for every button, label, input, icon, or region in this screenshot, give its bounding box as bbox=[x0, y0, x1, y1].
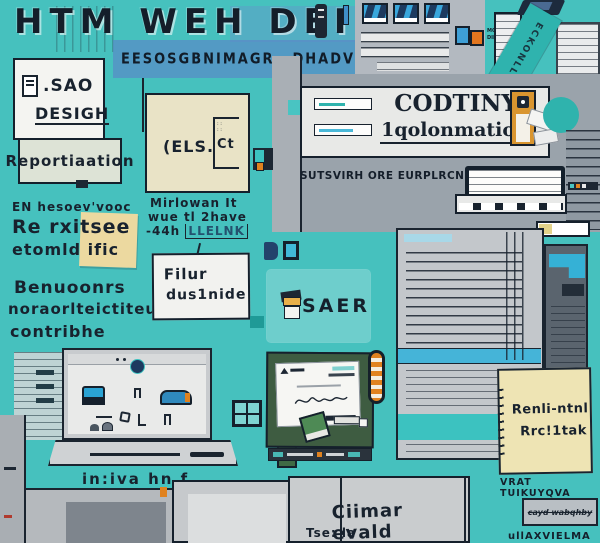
list-row[interactable] bbox=[361, 47, 449, 58]
window-rule-lines bbox=[506, 232, 528, 360]
doc-teal-chip bbox=[332, 366, 354, 371]
doodle-arch bbox=[134, 388, 141, 398]
sidebar-lines bbox=[551, 306, 585, 366]
square-icon bbox=[283, 241, 299, 260]
window-toolbar[interactable] bbox=[455, 194, 567, 214]
document-icon-line bbox=[26, 84, 34, 86]
window-tab-strip[interactable] bbox=[404, 234, 452, 242]
doc-logo bbox=[280, 368, 288, 374]
sticky-line1: Renli-ntnl bbox=[512, 401, 589, 417]
cream-card-label: (ELS. bbox=[163, 137, 214, 156]
hand-note-line: Mirlowan It bbox=[150, 196, 237, 210]
coding-panel-title: CODTINY bbox=[386, 90, 526, 117]
sticky-line2: Rrc!1tak bbox=[520, 423, 587, 439]
taskbar-dot bbox=[582, 184, 586, 188]
hand-note-link[interactable]: LLELNK bbox=[185, 224, 247, 239]
scribble-box: cayd wabqhby bbox=[522, 498, 598, 526]
toolbar-chip bbox=[317, 452, 322, 457]
saer-card[interactable]: SAER bbox=[267, 270, 370, 342]
avatar[interactable] bbox=[130, 359, 145, 374]
printer-icon-body bbox=[284, 306, 300, 319]
app-icon[interactable] bbox=[315, 4, 327, 38]
laptop-screen bbox=[62, 348, 212, 440]
desk-leg bbox=[0, 415, 26, 543]
cream-card: (ELS. : :: : Ct bbox=[145, 93, 250, 193]
sticky-note[interactable]: Renli-ntnl Rrc!1tak bbox=[497, 367, 593, 475]
monitor-icon-screen bbox=[255, 150, 264, 162]
laptop-screen-content bbox=[68, 354, 206, 434]
product-icon-bag[interactable] bbox=[82, 386, 105, 405]
product-icon-car[interactable] bbox=[160, 390, 192, 405]
report-card-tab bbox=[76, 180, 88, 188]
notes-line: Benuoonrs bbox=[14, 278, 126, 298]
menu-row-accent bbox=[319, 129, 353, 132]
blue-bar-icon bbox=[343, 5, 349, 25]
clock-dot bbox=[521, 100, 525, 104]
doc-mini-box bbox=[359, 418, 368, 427]
notes-line: Re rxitsee bbox=[12, 216, 130, 238]
side-taskbar bbox=[566, 130, 600, 230]
notes-line: etomld ific bbox=[12, 240, 119, 259]
laptop-trackpad[interactable] bbox=[190, 452, 224, 457]
report-card[interactable]: Reportiaation bbox=[18, 138, 122, 184]
orange-chip bbox=[256, 162, 264, 171]
toolbar-chip bbox=[326, 453, 344, 456]
contact-card: Ciimar evald Tse: la bbox=[288, 476, 470, 543]
saer-card-label: SAER bbox=[302, 295, 370, 317]
bag-base bbox=[84, 397, 103, 403]
gray-column bbox=[272, 56, 302, 232]
document-icon-line bbox=[26, 80, 34, 82]
design-card: .SAO DESIGH bbox=[13, 58, 105, 140]
taskbar-dot bbox=[570, 184, 574, 188]
window-pane-icon bbox=[232, 400, 262, 427]
cream-card-sidebox: : :: : Ct bbox=[213, 117, 239, 169]
lined-panel bbox=[556, 22, 600, 80]
printer-icon-paper bbox=[283, 297, 301, 306]
file-card-line2: dus1nide bbox=[166, 287, 246, 304]
hand-note-prefix: -44h bbox=[146, 224, 180, 238]
gray-card bbox=[172, 480, 297, 543]
taskbar-dot bbox=[576, 184, 580, 188]
notes-line: EN hesoev'vooc bbox=[12, 200, 132, 214]
doodle-box bbox=[119, 411, 131, 423]
doodle-rock bbox=[102, 422, 113, 431]
cream-card-side-label: Ct bbox=[217, 137, 235, 152]
car-tail bbox=[185, 393, 190, 402]
toolbar-chip bbox=[348, 452, 360, 457]
panel-caption: SUTSVIRH ORE EURPLRCNCAL bbox=[300, 170, 489, 182]
toolbar-chip bbox=[287, 453, 313, 456]
report-card-label: Reportiaation bbox=[6, 152, 135, 170]
file-card-pin bbox=[196, 243, 201, 255]
contact-card-line2: Tse: la bbox=[306, 526, 356, 540]
menu-item[interactable] bbox=[36, 384, 54, 389]
app-icon-mark bbox=[318, 9, 324, 11]
laptop-base bbox=[48, 440, 238, 466]
monitor-thumbnail[interactable] bbox=[362, 3, 388, 24]
menu-item[interactable] bbox=[36, 370, 54, 375]
banner-text-left: EESOSGBNIMAGR bbox=[121, 50, 275, 67]
window-text-lines bbox=[406, 444, 506, 458]
coding-panel: CODTINY 1qolonmation bbox=[300, 86, 550, 158]
doc-line bbox=[297, 384, 341, 387]
teal-circle bbox=[543, 97, 579, 133]
sidebox-dots: : :: : bbox=[217, 121, 237, 133]
coding-panel-subtitle: 1qolonmation bbox=[380, 119, 530, 144]
teal-dark-chip bbox=[250, 316, 264, 328]
bottom-right-text: ullAXVIELMA bbox=[508, 531, 591, 542]
bracket-icon bbox=[264, 242, 278, 260]
hand-note-line: wue tl 2have bbox=[148, 210, 247, 224]
desk-mark-red bbox=[4, 515, 12, 518]
scrollbar-capsule[interactable] bbox=[368, 350, 385, 404]
menu-item[interactable] bbox=[36, 398, 54, 403]
scribble-text: cayd wabqhby bbox=[528, 508, 593, 517]
doodle-arch bbox=[164, 414, 171, 425]
toolbar-chip bbox=[273, 452, 283, 457]
document-icon bbox=[22, 75, 38, 97]
signature bbox=[293, 390, 349, 410]
file-card-line1: Filur bbox=[164, 265, 208, 283]
doc-dash bbox=[328, 373, 354, 377]
orange-file-icon[interactable] bbox=[470, 30, 484, 46]
monitor-thumbnail[interactable] bbox=[393, 3, 419, 24]
desk-base bbox=[26, 488, 172, 543]
poster-canvas: EESOSGBNIMAGR DHADVMBEITOI HTM WEH DEI' … bbox=[0, 0, 600, 543]
sticky-binding bbox=[497, 389, 504, 459]
window-text-lines bbox=[406, 252, 522, 348]
sidebar-widget[interactable] bbox=[549, 254, 585, 278]
hand-note-line: -44h LLELNK bbox=[146, 224, 248, 238]
list-row[interactable] bbox=[361, 32, 449, 43]
menu-row[interactable] bbox=[314, 98, 372, 110]
notes-line: noraorlteictiteu bbox=[8, 300, 157, 318]
book-pages bbox=[306, 429, 329, 441]
app-icon-mark bbox=[318, 16, 324, 18]
blue-file-icon[interactable] bbox=[455, 26, 470, 45]
subtitle-banner: EESOSGBNIMAGR DHADVMBEITOI bbox=[113, 40, 368, 78]
menu-row-accent bbox=[319, 103, 345, 106]
window-dot bbox=[116, 358, 119, 361]
doodle-l bbox=[138, 414, 146, 426]
gray-card-inner bbox=[188, 494, 286, 543]
file-card[interactable]: Filur dus1nide bbox=[152, 253, 251, 321]
desk-mark bbox=[4, 467, 16, 470]
doc-label-chip bbox=[334, 416, 360, 424]
window-dot bbox=[123, 358, 126, 361]
doodle-dash bbox=[96, 416, 112, 418]
search-field[interactable] bbox=[536, 221, 590, 237]
desk-base-dark bbox=[66, 502, 166, 543]
taskbar-row[interactable] bbox=[568, 182, 598, 190]
sidebar-button[interactable] bbox=[562, 284, 584, 296]
laptop-base-line bbox=[90, 453, 180, 456]
doodle-rock bbox=[90, 424, 99, 431]
design-card-line1: .SAO bbox=[43, 76, 93, 96]
doc-header-dash bbox=[290, 368, 304, 371]
toolbar-segments bbox=[459, 203, 563, 210]
notes-line: contribhe bbox=[10, 322, 106, 341]
monitor-thumbnail[interactable] bbox=[424, 3, 450, 24]
orange-chip bbox=[160, 487, 167, 497]
menu-row[interactable] bbox=[314, 124, 372, 136]
list-row[interactable] bbox=[377, 62, 449, 71]
design-card-line2: DESIGH bbox=[35, 104, 109, 125]
green-panel bbox=[266, 352, 375, 449]
pole-line bbox=[142, 78, 144, 132]
mini-toolbar[interactable] bbox=[268, 448, 372, 461]
clock-icon bbox=[517, 96, 529, 108]
sticky-caption: VRAT TUIKUYQVA bbox=[500, 477, 600, 499]
printer-icon bbox=[279, 291, 292, 321]
